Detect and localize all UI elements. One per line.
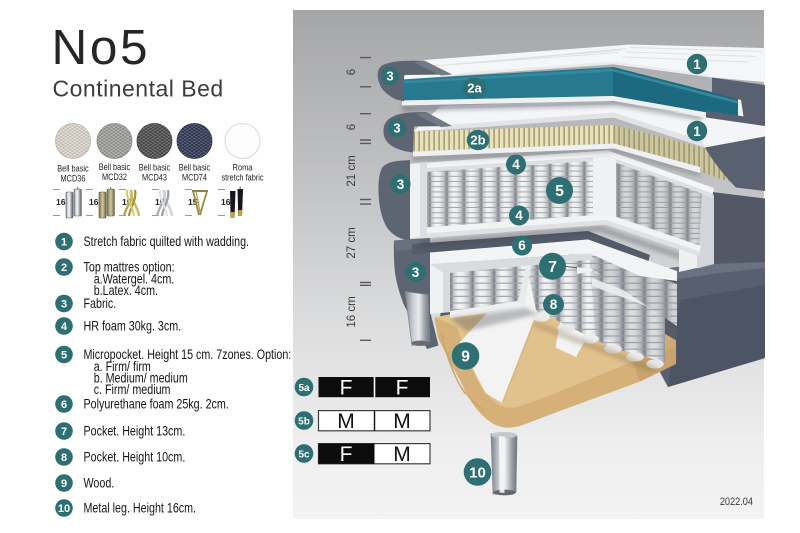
svg-text:6: 6 xyxy=(346,69,358,75)
svg-text:5a: 5a xyxy=(298,383,310,394)
svg-text:2022.04: 2022.04 xyxy=(720,496,754,508)
svg-text:10: 10 xyxy=(58,503,70,515)
svg-text:2: 2 xyxy=(61,262,67,274)
svg-text:10: 10 xyxy=(469,465,486,482)
svg-text:9: 9 xyxy=(461,349,470,366)
svg-text:7: 7 xyxy=(548,259,557,276)
svg-text:2a: 2a xyxy=(467,81,482,96)
svg-text:HR foam 30kg. 3cm.: HR foam 30kg. 3cm. xyxy=(84,319,182,334)
svg-text:8: 8 xyxy=(61,452,67,464)
svg-text:Fabric.: Fabric. xyxy=(84,296,117,311)
svg-text:Metal leg. Height 16cm.: Metal leg. Height 16cm. xyxy=(84,501,197,516)
svg-text:MCD36: MCD36 xyxy=(61,173,86,184)
svg-text:MCD32: MCD32 xyxy=(102,171,127,182)
svg-text:5c: 5c xyxy=(298,449,310,460)
svg-text:M: M xyxy=(393,410,411,433)
svg-text:Wood.: Wood. xyxy=(84,476,115,491)
svg-text:6: 6 xyxy=(61,399,67,411)
svg-text:4: 4 xyxy=(515,208,523,223)
svg-text:16: 16 xyxy=(221,197,231,207)
svg-text:stretch fabric: stretch fabric xyxy=(221,172,263,183)
svg-text:Continental Bed: Continental Bed xyxy=(53,76,224,102)
svg-text:8: 8 xyxy=(550,297,558,312)
svg-text:3: 3 xyxy=(393,121,400,136)
svg-text:5: 5 xyxy=(555,183,564,200)
svg-text:3: 3 xyxy=(397,177,405,192)
svg-text:F: F xyxy=(340,443,353,466)
svg-text:3: 3 xyxy=(412,265,420,280)
svg-text:F: F xyxy=(396,376,409,399)
svg-text:3: 3 xyxy=(386,69,393,84)
svg-text:6: 6 xyxy=(518,238,526,253)
svg-text:3: 3 xyxy=(61,299,67,311)
svg-text:F: F xyxy=(340,376,353,399)
svg-text:Polyurethane foam 25kg. 2cm.: Polyurethane foam 25kg. 2cm. xyxy=(84,397,229,412)
svg-text:1: 1 xyxy=(61,237,67,249)
svg-text:4: 4 xyxy=(61,321,68,333)
svg-text:1: 1 xyxy=(693,57,701,72)
svg-text:MCD43: MCD43 xyxy=(142,172,167,183)
svg-text:7: 7 xyxy=(61,426,67,438)
svg-text:4: 4 xyxy=(512,157,520,172)
svg-text:No5: No5 xyxy=(52,20,151,75)
svg-text:M: M xyxy=(337,410,355,433)
svg-text:5: 5 xyxy=(61,350,67,362)
svg-text:5b: 5b xyxy=(298,416,310,427)
svg-text:6: 6 xyxy=(346,124,358,130)
svg-text:21 cm: 21 cm xyxy=(346,155,358,186)
svg-text:16 cm: 16 cm xyxy=(346,296,358,327)
svg-text:2b: 2b xyxy=(470,133,485,148)
svg-text:1: 1 xyxy=(693,124,701,139)
svg-text:16: 16 xyxy=(56,197,66,207)
svg-text:c. Firm/ medium: c. Firm/ medium xyxy=(94,382,171,397)
svg-text:Pocket. Height 10cm.: Pocket. Height 10cm. xyxy=(84,450,186,465)
svg-text:MCD74: MCD74 xyxy=(182,172,207,183)
svg-text:Stretch fabric quilted with wa: Stretch fabric quilted with wadding. xyxy=(84,234,250,249)
svg-text:9: 9 xyxy=(61,478,67,490)
svg-text:16: 16 xyxy=(89,197,99,207)
svg-text:Pocket. Height 13cm.: Pocket. Height 13cm. xyxy=(84,424,186,439)
svg-text:M: M xyxy=(393,443,411,466)
svg-text:27 cm: 27 cm xyxy=(346,227,358,258)
